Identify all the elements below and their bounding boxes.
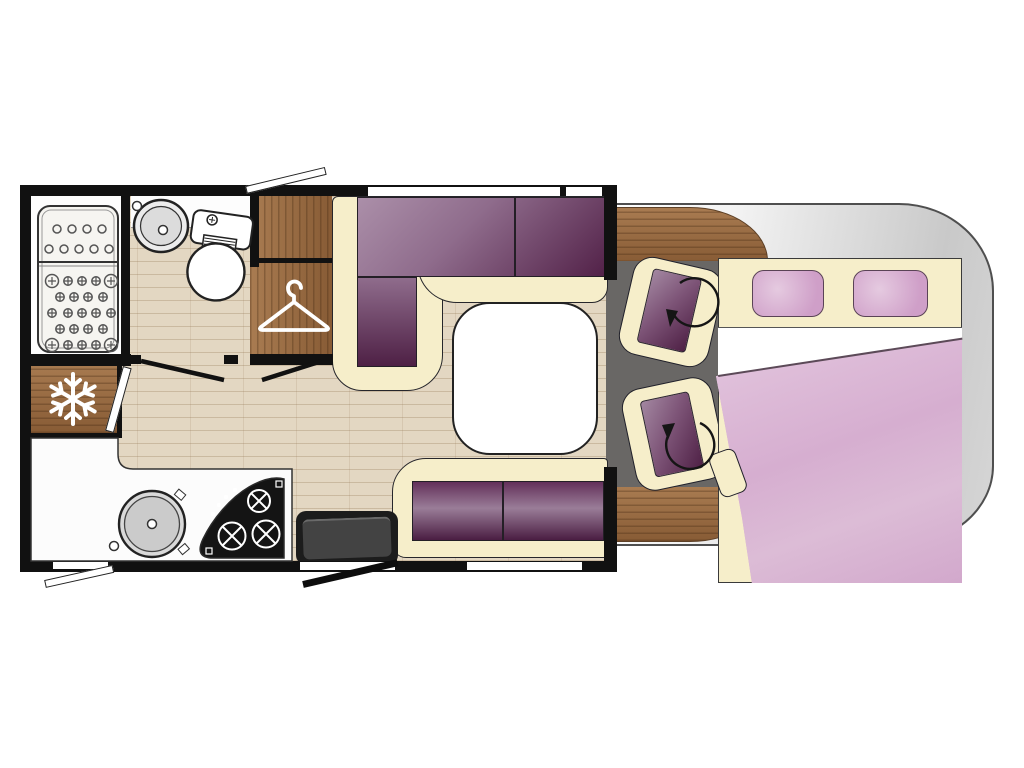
shower-wall-bracket — [66, 194, 92, 210]
pillow-right — [853, 270, 928, 317]
wall-hall-stub-left — [126, 355, 141, 364]
table — [452, 302, 598, 455]
l-sofa-side-cushion — [357, 277, 417, 367]
l-sofa-back-cushion — [357, 197, 606, 277]
l-sofa-cushion-seam — [514, 197, 516, 277]
wardrobe-shelf-divider — [250, 258, 332, 263]
entry-step-tread — [302, 516, 391, 559]
bench-cushion-seam — [502, 481, 504, 541]
duvet — [716, 339, 962, 583]
entry-step — [296, 511, 398, 565]
bathroom-counter — [131, 196, 253, 228]
wall-right-stub-bottom — [604, 467, 617, 572]
seat-cushion — [639, 391, 704, 478]
pillow-left — [752, 270, 824, 317]
window-top-1 — [368, 187, 560, 196]
window-bottom — [467, 562, 582, 570]
wall-bathroom-bottom — [20, 354, 131, 366]
wall-wardrobe-left — [250, 196, 259, 267]
motorhome-floorplan — [0, 0, 1024, 768]
window-top-2 — [566, 187, 602, 196]
wardrobe — [250, 196, 332, 357]
wall-hall-stub-right — [224, 355, 238, 364]
wall-right-stub-top — [604, 185, 617, 280]
wall-wardrobe-bottom — [250, 354, 333, 365]
bench-sofa-cushion — [412, 481, 604, 541]
wall-shower-right — [121, 196, 130, 357]
wall-left — [20, 185, 31, 572]
seat-cushion — [636, 268, 702, 353]
